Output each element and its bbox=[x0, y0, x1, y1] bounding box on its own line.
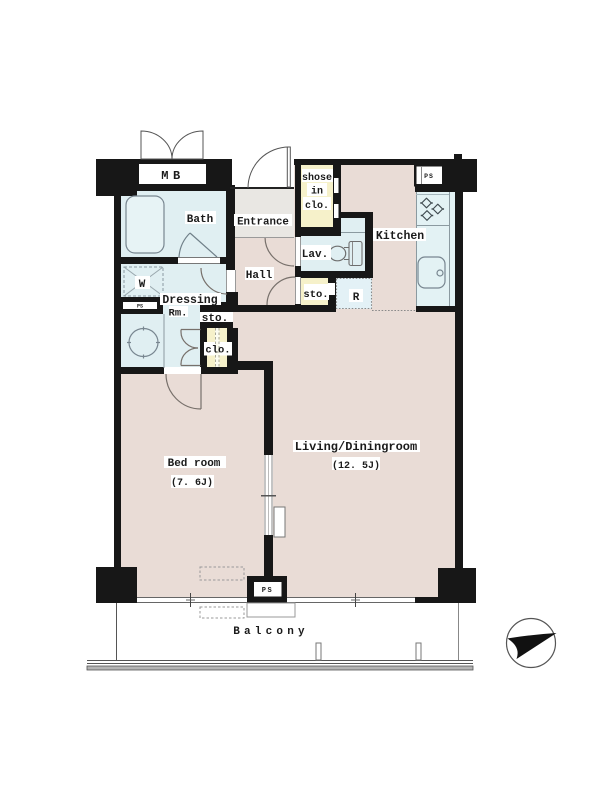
svg-text:Dressing: Dressing bbox=[162, 294, 217, 307]
svg-text:clo.: clo. bbox=[305, 200, 329, 212]
svg-text:Bed room: Bed room bbox=[168, 458, 221, 470]
svg-text:(7. 6J): (7. 6J) bbox=[171, 477, 213, 489]
svg-text:W: W bbox=[139, 279, 146, 291]
svg-text:Rm.: Rm. bbox=[169, 308, 188, 320]
svg-text:PS: PS bbox=[137, 304, 143, 310]
svg-text:Lav.: Lav. bbox=[302, 249, 328, 261]
svg-text:Balcony: Balcony bbox=[233, 626, 309, 638]
svg-text:sto.: sto. bbox=[202, 313, 228, 325]
svg-text:clo.: clo. bbox=[205, 345, 230, 357]
svg-text:MB: MB bbox=[161, 169, 184, 183]
svg-text:PS: PS bbox=[262, 587, 273, 595]
svg-text:shose: shose bbox=[302, 172, 332, 184]
svg-text:(12. 5J): (12. 5J) bbox=[332, 460, 380, 472]
svg-text:Hall: Hall bbox=[246, 270, 273, 282]
svg-text:PS: PS bbox=[424, 173, 434, 180]
svg-text:sto.: sto. bbox=[303, 289, 328, 301]
svg-text:in: in bbox=[311, 186, 323, 198]
svg-text:Living/Diningroom: Living/Diningroom bbox=[295, 440, 417, 454]
svg-text:R: R bbox=[353, 292, 360, 304]
svg-text:Bath: Bath bbox=[187, 214, 213, 226]
svg-text:Kitchen: Kitchen bbox=[376, 230, 424, 243]
svg-text:Entrance: Entrance bbox=[237, 217, 289, 229]
